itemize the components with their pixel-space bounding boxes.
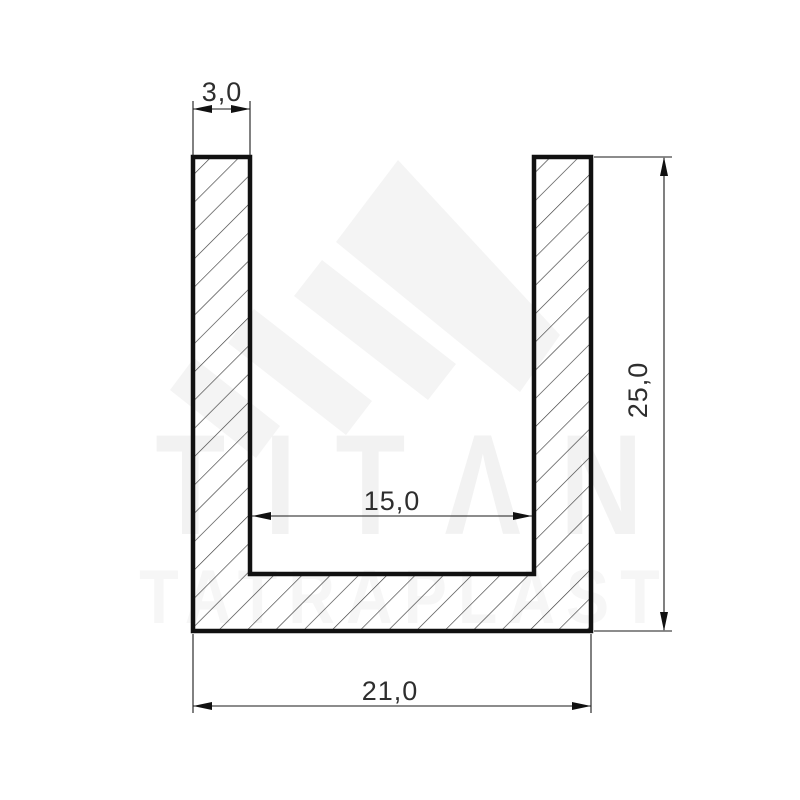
arrowhead-left-icon xyxy=(252,512,271,520)
arrowhead-left-icon xyxy=(193,702,212,710)
dimension-label-outer-width: 21,0 xyxy=(362,676,419,706)
dimension-label-height: 25,0 xyxy=(623,362,653,419)
logo-ribbon-large xyxy=(336,160,560,392)
dimension-label-inner-width: 15,0 xyxy=(364,486,421,516)
arrowhead-right-icon xyxy=(513,512,532,520)
arrowhead-down-icon xyxy=(660,612,668,631)
dimension-label-wall-thickness: 3,0 xyxy=(202,77,243,107)
arrowhead-right-icon xyxy=(572,702,591,710)
arrowhead-up-icon xyxy=(660,157,668,176)
profile-drawing: 3,0 25,0 15,0 21,0 xyxy=(0,0,800,800)
drawing-canvas: TITΛN TATRAPLAST 3,0 xyxy=(0,0,800,800)
